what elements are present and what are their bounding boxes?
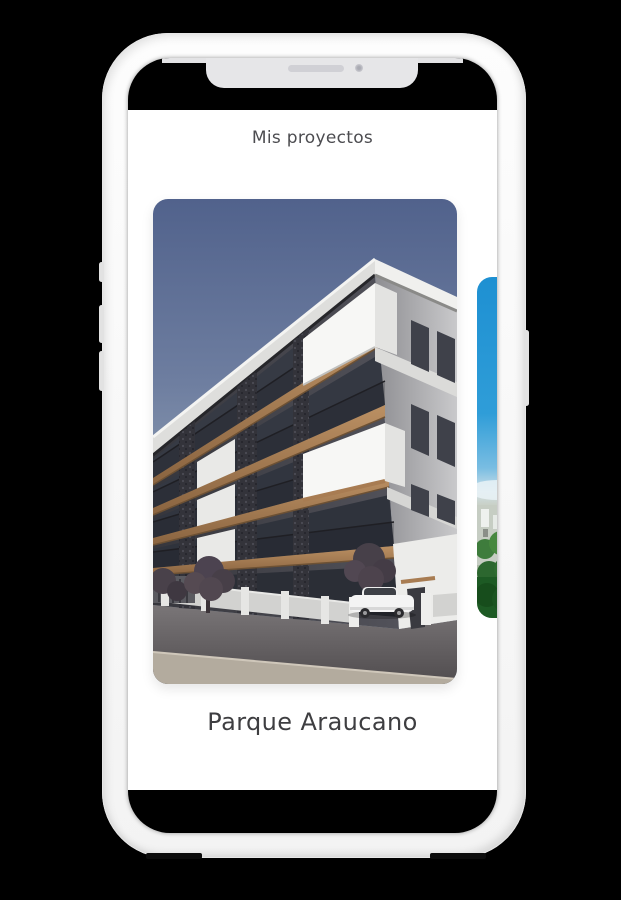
- app-screen: Mis proyectos: [128, 110, 497, 790]
- project-card[interactable]: [153, 199, 457, 684]
- mute-switch: [99, 262, 104, 282]
- project-name: Parque Araucano: [128, 708, 497, 736]
- antenna-line: [430, 853, 486, 859]
- next-project-image: [477, 277, 497, 618]
- building-image: [153, 199, 457, 684]
- volume-down-button: [99, 351, 104, 391]
- next-project-card[interactable]: [477, 277, 497, 618]
- notch: [206, 58, 418, 88]
- canvas: Mis proyectos: [0, 0, 621, 900]
- power-button: [524, 330, 529, 406]
- volume-up-button: [99, 305, 104, 343]
- phone-mockup: Mis proyectos: [102, 33, 526, 858]
- phone-screen: Mis proyectos: [128, 58, 497, 833]
- antenna-line: [146, 853, 202, 859]
- speaker-icon: [288, 65, 344, 72]
- page-title: Mis proyectos: [128, 128, 497, 148]
- camera-icon: [355, 64, 363, 72]
- projects-carousel: [128, 199, 497, 684]
